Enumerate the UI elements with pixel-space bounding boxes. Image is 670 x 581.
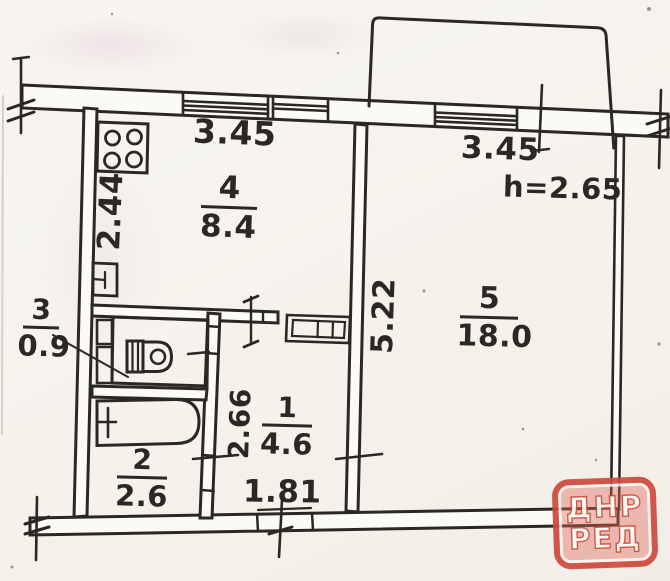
room-number: 4 bbox=[196, 171, 263, 207]
room-number: 3 bbox=[18, 294, 65, 325]
room-number: 1 bbox=[259, 392, 316, 424]
watermark-logo: ДНР РЕД bbox=[551, 476, 658, 570]
wc-bath-wall bbox=[92, 386, 207, 400]
height-note: h=2.65 bbox=[503, 171, 623, 205]
dim-kitchen-depth: 2.44 bbox=[93, 166, 129, 257]
vent-shafts bbox=[97, 320, 112, 383]
hall-left-wall bbox=[200, 313, 220, 518]
toilet-icon bbox=[127, 341, 172, 372]
room-area: 8.4 bbox=[195, 210, 262, 246]
sink-icon bbox=[93, 263, 117, 296]
dim-entry-width: 1.81 bbox=[243, 475, 322, 509]
room-number: 5 bbox=[457, 282, 522, 316]
room-label-room5: 5 18.0 bbox=[456, 282, 522, 354]
dim-hall-depth: 2.66 bbox=[224, 381, 256, 466]
bathtub-icon bbox=[97, 400, 199, 446]
bath-door-jamb bbox=[202, 490, 214, 491]
floorplan-scan: 3.45 3.45 h=2.65 2.44 5.22 2.66 1.81 4 8… bbox=[0, 0, 670, 581]
dim-kitchen-width: 3.45 bbox=[192, 114, 277, 152]
bath-door-jamb bbox=[203, 455, 215, 456]
room-label-bath: 2 2.6 bbox=[113, 444, 171, 513]
room-label-hall: 1 4.6 bbox=[258, 392, 316, 461]
dim-room5-depth: 5.22 bbox=[367, 270, 402, 361]
scan-edge-artifact bbox=[2, 96, 3, 434]
room-area: 4.6 bbox=[258, 429, 315, 462]
room-label-kitchen: 4 8.4 bbox=[195, 171, 264, 246]
closet-icon bbox=[286, 315, 350, 343]
dim-room5-width: 3.45 bbox=[460, 132, 540, 167]
room-area: 0.9 bbox=[17, 331, 64, 364]
room-area: 2.6 bbox=[113, 481, 170, 514]
room-number: 2 bbox=[114, 444, 171, 476]
watermark-text-line2: РЕД bbox=[569, 522, 643, 555]
top-wall bbox=[22, 85, 668, 137]
entry-door-jamb bbox=[312, 513, 313, 530]
room-area: 18.0 bbox=[456, 321, 521, 355]
room-label-wc: 3 0.9 bbox=[17, 294, 65, 363]
entry-door-jamb bbox=[257, 514, 258, 531]
